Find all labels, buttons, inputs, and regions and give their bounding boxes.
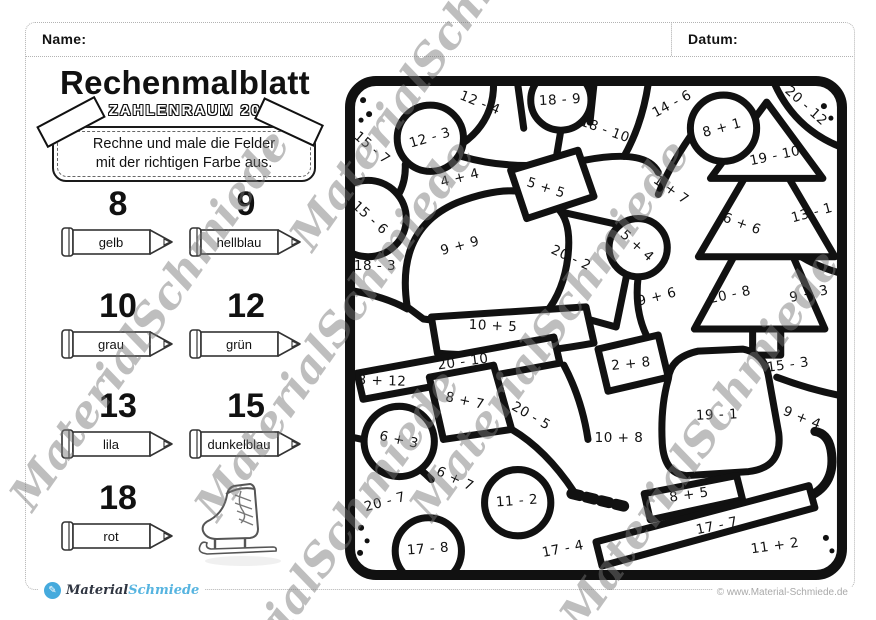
crayon-color-label: hellblau [217, 235, 262, 250]
legend-item: 15dunkelblau [188, 388, 304, 465]
math-expression: 3 + 12 [357, 372, 406, 390]
crayon-color-label: dunkelblau [208, 437, 271, 452]
worksheet-page: Name: Datum: Rechenmalblatt ZAHLENRAUM 2… [0, 0, 876, 620]
instruction-line-2: mit der richtigen Farbe aus. [58, 154, 310, 173]
math-expression: 10 + 5 [468, 317, 517, 336]
math-expression: 11 - 2 [495, 492, 538, 511]
copyright-text: © www.Material-Schmiede.de [713, 587, 852, 598]
crayon-icon: dunkelblau [188, 428, 304, 460]
datum-label: Datum: [688, 31, 738, 47]
instruction-box: Rechne und male die Felder mit der richt… [52, 126, 316, 182]
math-expression: 10 + 8 [595, 430, 644, 446]
instruction-line-1: Rechne und male die Felder [58, 135, 310, 154]
brand-logo: ✎ MaterialSchmiede [38, 582, 205, 599]
header-divider [25, 56, 853, 57]
crayon-color-label: lila [103, 437, 120, 452]
math-expression: 18 - 3 [354, 258, 396, 274]
math-expression: 17 - 8 [406, 540, 449, 559]
crayon-color-label: rot [103, 529, 119, 544]
legend-item: 9hellblau [188, 186, 304, 263]
crayon-color-label: gelb [99, 235, 124, 250]
legend-number: 13 [60, 388, 176, 424]
crayon-icon: rot [60, 520, 176, 552]
legend-item: 12grün [188, 288, 304, 365]
legend-number: 8 [60, 186, 176, 222]
coloring-picture: 15 - 712 - 312 - 418 - 918 - 1014 - 68 +… [345, 76, 847, 580]
pencil-logo-icon: ✎ [44, 582, 61, 599]
legend-number: 15 [188, 388, 304, 424]
math-expression: 18 - 9 [538, 91, 581, 109]
legend-item: 13lila [60, 388, 176, 465]
legend-number: 9 [188, 186, 304, 222]
crayon-icon: gelb [60, 226, 176, 258]
crayon-icon: grün [188, 328, 304, 360]
legend-number: 12 [188, 288, 304, 324]
header-split-divider [671, 22, 672, 56]
crayon-icon: lila [60, 428, 176, 460]
math-expression: 19 - 1 [696, 406, 739, 423]
crayon-icon: hellblau [188, 226, 304, 258]
page-title: Rechenmalblatt [45, 64, 325, 102]
legend-number: 18 [60, 480, 176, 516]
ice-skate-illustration [193, 473, 293, 573]
name-label: Name: [42, 31, 86, 47]
legend-item: 8gelb [60, 186, 176, 263]
crayon-color-label: grün [226, 337, 252, 352]
crayon-color-label: grau [98, 337, 124, 352]
legend-item: 10grau [60, 288, 176, 365]
logo-text-schmiede: Schmiede [128, 583, 199, 598]
legend-number: 10 [60, 288, 176, 324]
logo-text-material: Material [66, 583, 128, 598]
legend-item: 18rot [60, 480, 176, 557]
crayon-icon: grau [60, 328, 176, 360]
